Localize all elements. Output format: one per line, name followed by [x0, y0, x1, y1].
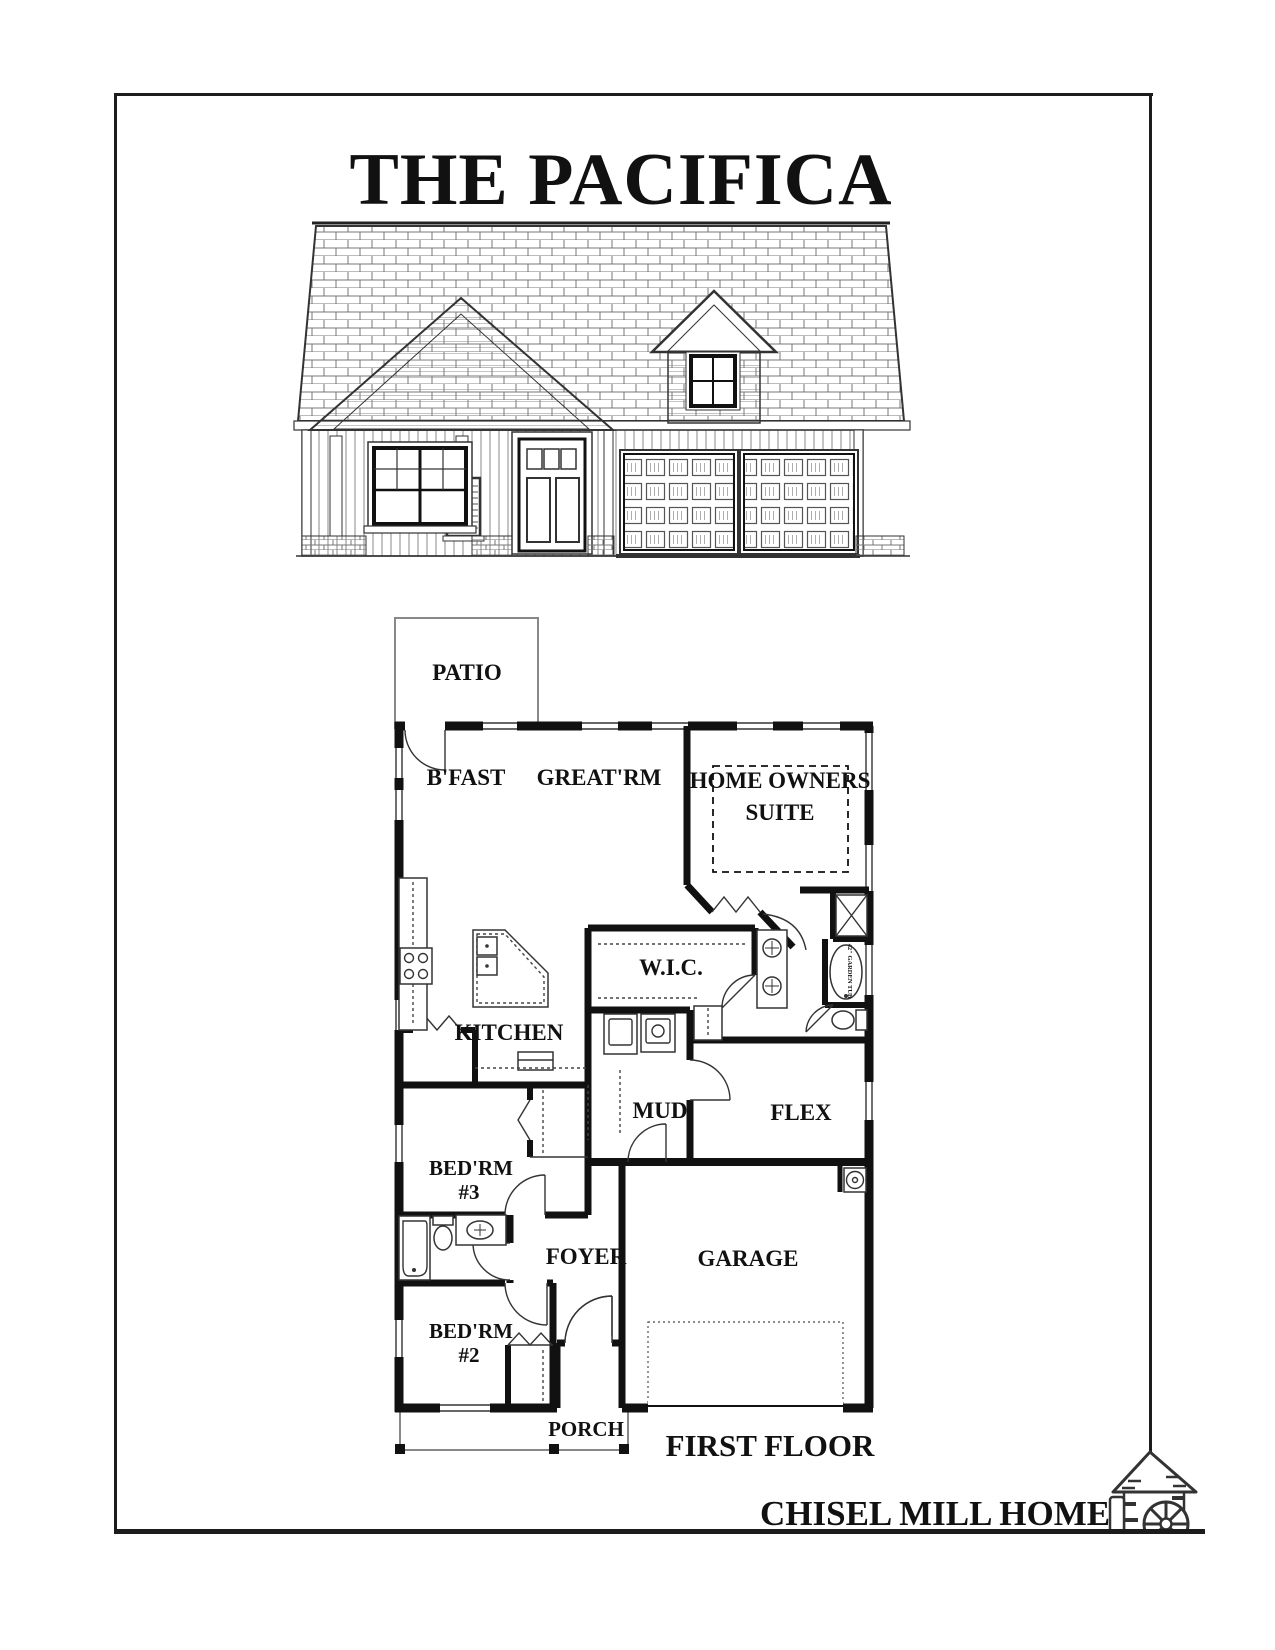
- first-floor-plan: 42" GARDEN TUB: [385, 585, 885, 1465]
- garden-tub-label: 42" GARDEN TUB: [846, 944, 853, 999]
- room-label-flex: FLEX: [770, 1100, 832, 1125]
- plan-sheet: THE PACIFICA: [0, 0, 1275, 1650]
- room-label-owners-suite-1: HOME OWNERS: [690, 768, 871, 793]
- room-label-porch: PORCH: [548, 1417, 624, 1441]
- floor-label: FIRST FLOOR: [640, 1428, 900, 1464]
- house-elevation-drawing: [290, 215, 915, 570]
- frame-left: [114, 93, 117, 1534]
- room-label-owners-suite-2: SUITE: [745, 800, 814, 825]
- linen-closet: [694, 1006, 722, 1040]
- room-label-greatrm: GREAT'RM: [537, 765, 662, 790]
- exterior-walls: [395, 722, 873, 1412]
- room-label-bed2-2: #2: [459, 1343, 480, 1367]
- patio-door: [405, 719, 445, 770]
- garage-items: [648, 1168, 866, 1414]
- room-label-kitchen: KITCHEN: [455, 1020, 564, 1045]
- garage-doors: [616, 450, 860, 558]
- room-label-bed2-1: BED'RM: [429, 1319, 513, 1343]
- hall-bath-fixtures: [399, 1215, 506, 1280]
- dormer-window: [686, 352, 740, 410]
- interior-walls: [395, 726, 873, 1408]
- front-window: [364, 442, 476, 533]
- mill-logo-icon: [1095, 1438, 1210, 1534]
- front-door: [512, 432, 592, 554]
- frame-right: [1149, 93, 1152, 1453]
- room-label-foyer: FOYER: [546, 1244, 627, 1269]
- frame-bottom: [114, 1529, 1205, 1534]
- room-label-patio: PATIO: [432, 660, 501, 685]
- room-label-mud: MUD: [633, 1098, 688, 1123]
- room-label-bed3-2: #3: [459, 1180, 480, 1204]
- frame-top: [114, 93, 1153, 96]
- washer-dryer: [604, 1014, 675, 1054]
- room-label-bfast: B'FAST: [427, 765, 506, 790]
- brand-name: CHISEL MILL HOMES: [760, 1494, 1110, 1534]
- page-title: THE PACIFICA: [271, 138, 971, 223]
- room-label-wic: W.I.C.: [639, 955, 703, 980]
- room-label-bed3-1: BED'RM: [429, 1156, 513, 1180]
- room-label-garage: GARAGE: [698, 1246, 799, 1271]
